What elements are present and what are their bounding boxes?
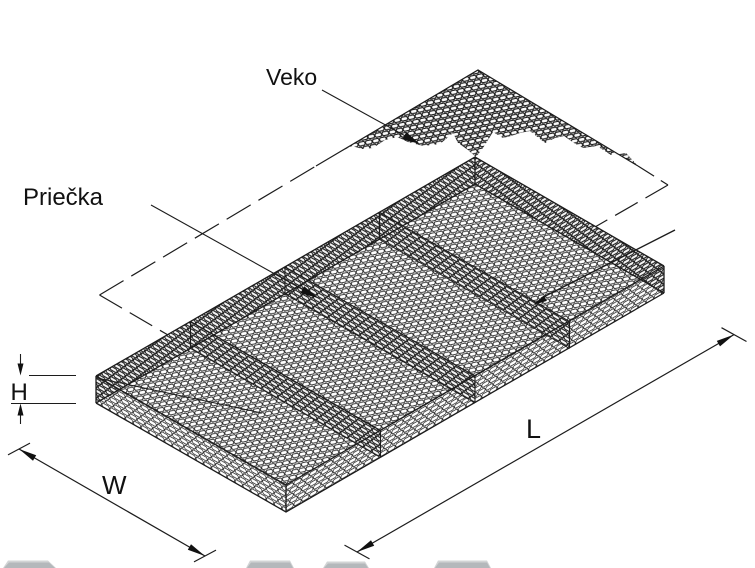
svg-text:L: L bbox=[526, 414, 541, 444]
svg-text:W: W bbox=[102, 470, 127, 500]
svg-text:Priečka: Priečka bbox=[23, 184, 104, 211]
svg-text:H: H bbox=[11, 379, 28, 406]
svg-text:Veko: Veko bbox=[266, 64, 317, 90]
